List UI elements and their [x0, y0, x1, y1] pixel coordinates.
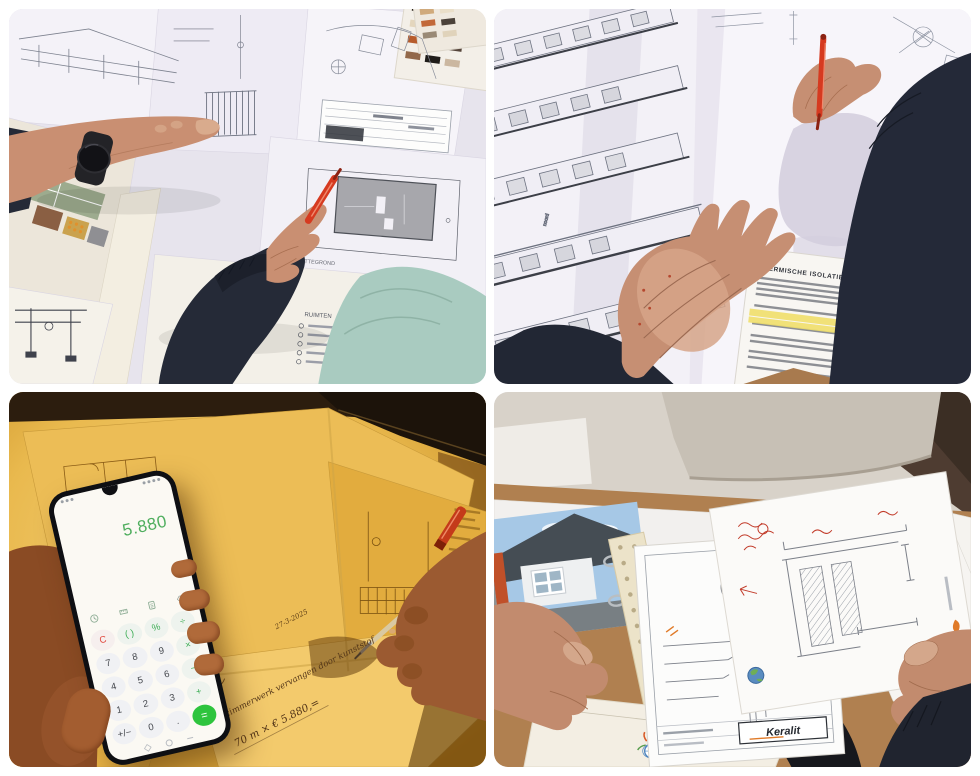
calc-key-equals: =: [190, 702, 218, 728]
history-icon: [89, 613, 100, 624]
calc-key-6: 6: [153, 662, 181, 688]
calc-key-plus: +: [185, 679, 213, 705]
calc-key-8: 8: [121, 644, 149, 670]
calc-key-clear: C: [89, 627, 117, 653]
plan-discussion-scene: PLATTEGROND RUIMTEN: [9, 9, 486, 384]
calc-key-9: 9: [147, 638, 175, 664]
photo-detail-documents: 2A Keralit: [494, 392, 971, 767]
photo-collage: PLATTEGROND RUIMTEN: [0, 0, 980, 776]
calc-key-parens: ( ): [115, 621, 143, 647]
color-swatch-fan: [394, 9, 486, 92]
photo-plan-discussion: PLATTEGROND RUIMTEN: [9, 9, 486, 384]
elevation-review-scene: noord THERMISCHE ISOLATIE WAARDEN RENVOO…: [494, 9, 971, 384]
scientific-calculator-icon: [147, 600, 158, 611]
calc-key-2: 2: [132, 691, 160, 717]
calc-key-7: 7: [94, 651, 122, 677]
calc-key-plusminus: +/−: [110, 721, 138, 747]
unit-converter-icon: [118, 606, 129, 617]
calc-key-5: 5: [126, 668, 154, 694]
detail-documents-scene: 2A Keralit: [494, 392, 971, 767]
photo-elevation-review: noord THERMISCHE ISOLATIE WAARDEN RENVOO…: [494, 9, 971, 384]
calc-key-0: 0: [137, 715, 165, 741]
brand-logo-text: Keralit: [766, 725, 802, 739]
fingernail: [389, 629, 396, 634]
calc-key-decimal: .: [164, 708, 192, 734]
calc-key-percent: %: [142, 615, 170, 641]
calc-key-3: 3: [158, 685, 186, 711]
photo-cost-calculation: 27-3-2025 al timmerwerk vervangen door k…: [9, 392, 486, 767]
